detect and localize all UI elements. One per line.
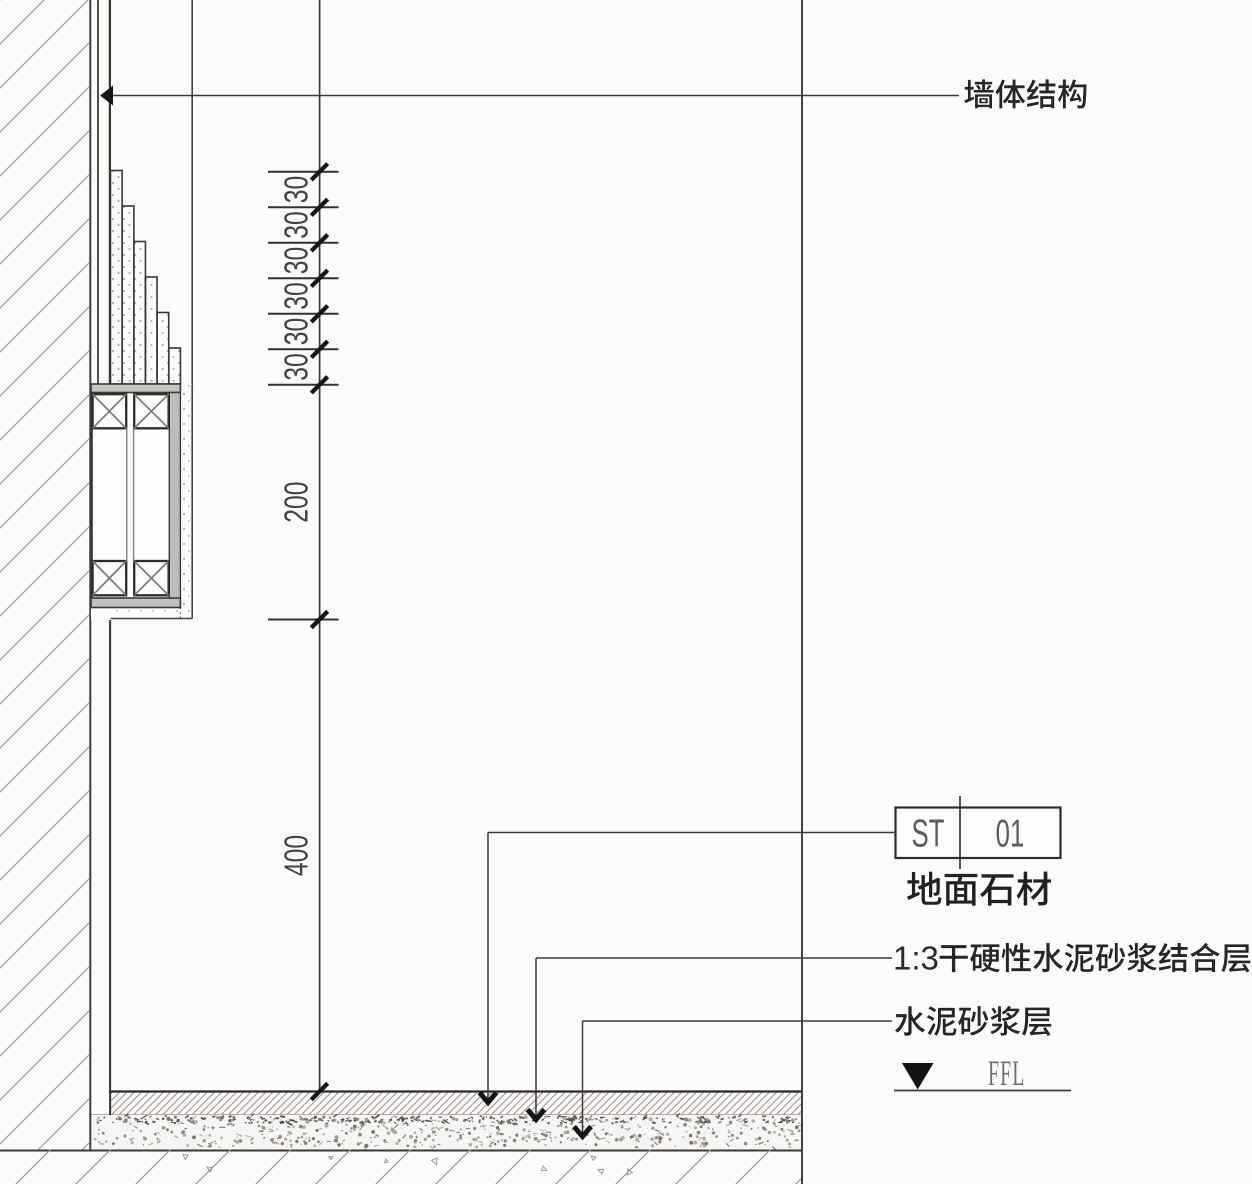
svg-text:30: 30: [279, 211, 315, 239]
svg-text:30: 30: [279, 318, 315, 346]
svg-text:200: 200: [279, 482, 315, 523]
svg-text:30: 30: [279, 247, 315, 275]
svg-text:30: 30: [279, 176, 315, 204]
svg-text:30: 30: [279, 282, 315, 310]
svg-text:1:3: 1:3: [893, 940, 939, 977]
svg-text:400: 400: [279, 835, 315, 876]
svg-text:ST: ST: [912, 812, 945, 856]
svg-text:FFL: FFL: [988, 1054, 1025, 1094]
svg-text:30: 30: [279, 353, 315, 381]
svg-text:01: 01: [996, 812, 1025, 856]
